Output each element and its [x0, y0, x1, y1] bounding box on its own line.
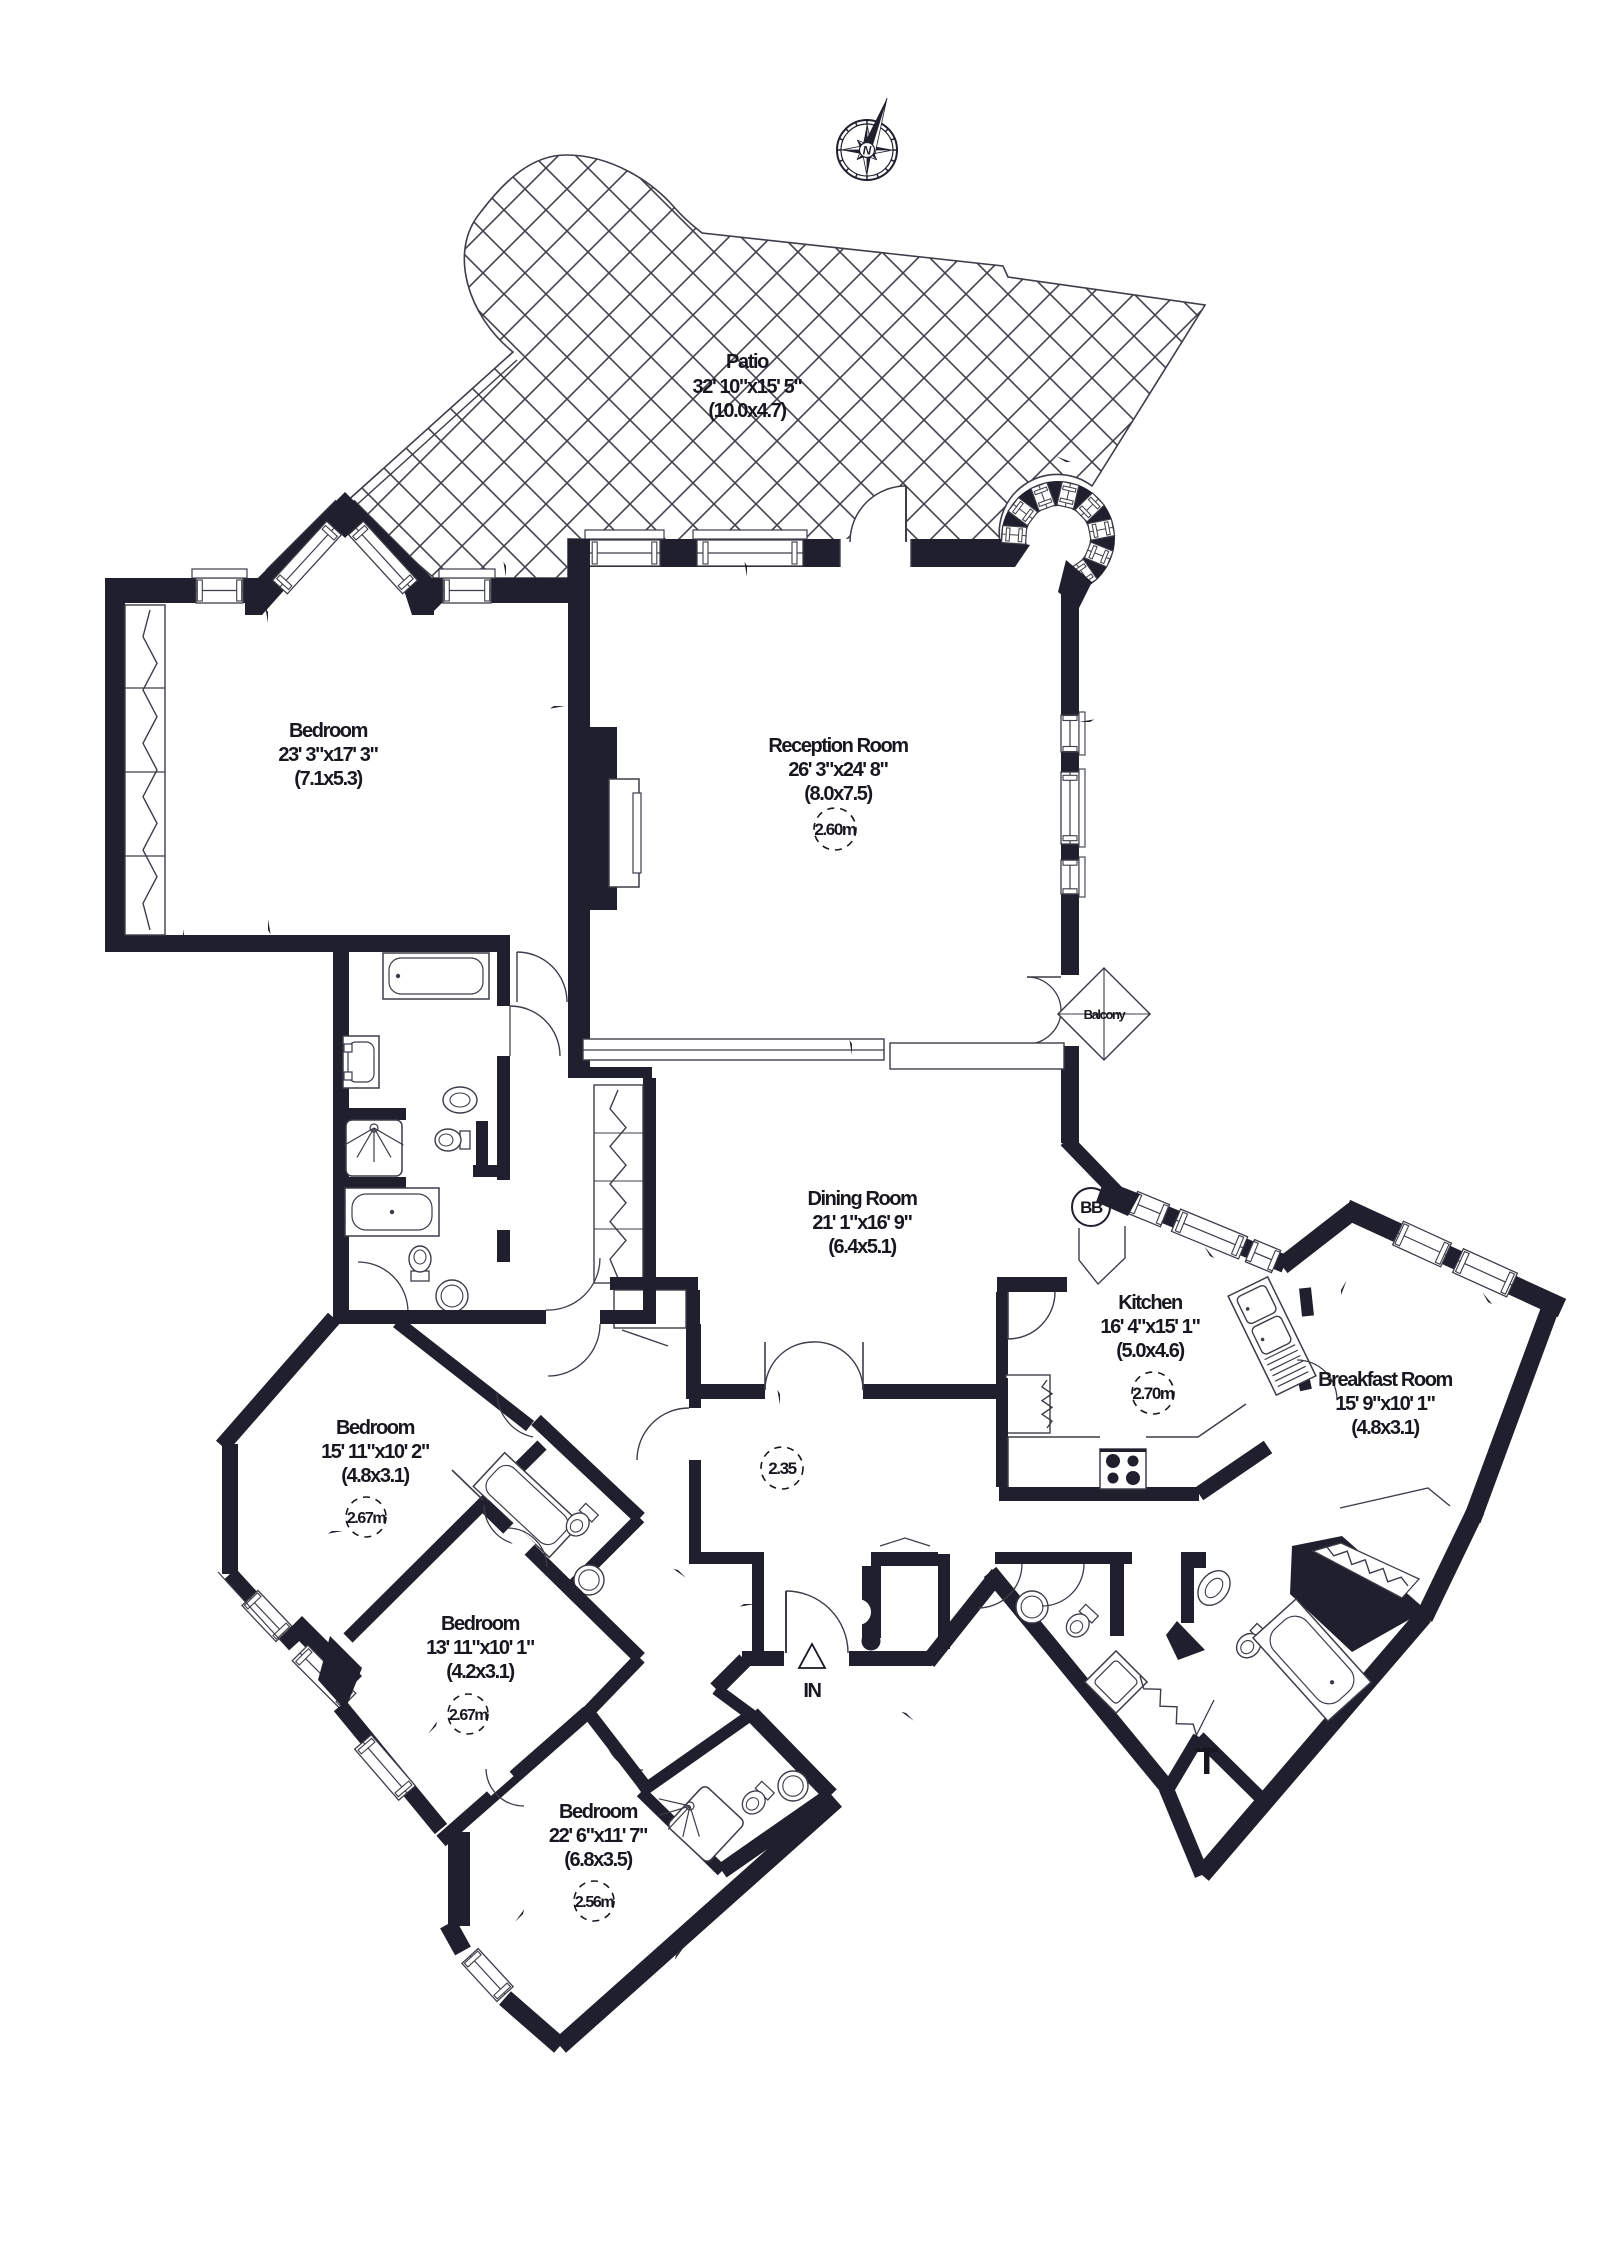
svg-text:2.56m: 2.56m — [575, 1894, 615, 1911]
svg-text:Bedroom: Bedroom — [289, 720, 368, 742]
svg-text:Reception Room: Reception Room — [768, 735, 908, 757]
svg-text:21' 1"x16' 9": 21' 1"x16' 9" — [812, 1212, 912, 1234]
svg-text:Breakfast Room: Breakfast Room — [1318, 1369, 1452, 1391]
svg-text:23' 3"x17' 3": 23' 3"x17' 3" — [278, 744, 378, 766]
svg-text:Bedroom: Bedroom — [559, 1801, 638, 1823]
svg-text:Patio: Patio — [726, 351, 769, 373]
svg-text:(4.8x3.1): (4.8x3.1) — [341, 1465, 409, 1487]
svg-text:N: N — [863, 144, 872, 158]
svg-text:(6.8x3.5): (6.8x3.5) — [564, 1849, 632, 1871]
svg-text:Bedroom: Bedroom — [441, 1613, 520, 1635]
svg-text:(4.2x3.1): (4.2x3.1) — [446, 1661, 514, 1683]
svg-text:22' 6"x11' 7": 22' 6"x11' 7" — [549, 1825, 648, 1847]
svg-text:2.67m: 2.67m — [449, 1707, 489, 1724]
svg-text:15' 11"x10' 2": 15' 11"x10' 2" — [321, 1441, 430, 1463]
svg-text:13' 11"x10' 1": 13' 11"x10' 1" — [426, 1637, 535, 1659]
svg-text:16' 4"x15' 1": 16' 4"x15' 1" — [1100, 1316, 1200, 1338]
svg-text:2.67m: 2.67m — [347, 1510, 387, 1527]
svg-text:2.70m: 2.70m — [1132, 1384, 1174, 1403]
svg-text:T: T — [1195, 1741, 1218, 1783]
svg-text:Dining Room: Dining Room — [807, 1188, 917, 1210]
svg-text:Balcony: Balcony — [1084, 1007, 1127, 1022]
svg-text:26' 3"x24' 8": 26' 3"x24' 8" — [788, 759, 888, 781]
svg-text:2.60m: 2.60m — [814, 820, 856, 839]
svg-text:Bedroom: Bedroom — [336, 1417, 415, 1439]
svg-text:32' 10"x15' 5": 32' 10"x15' 5" — [693, 376, 803, 398]
svg-text:(8.0x7.5): (8.0x7.5) — [804, 783, 872, 805]
svg-text:(7.1x5.3): (7.1x5.3) — [294, 768, 362, 790]
svg-text:(10.0x4.7): (10.0x4.7) — [708, 400, 786, 422]
svg-text:(5.0x4.6): (5.0x4.6) — [1116, 1340, 1184, 1362]
svg-text:Kitchen: Kitchen — [1118, 1292, 1182, 1314]
svg-text:(4.8x3.1): (4.8x3.1) — [1351, 1417, 1419, 1439]
svg-text:2.35: 2.35 — [768, 1459, 796, 1478]
svg-text:IN: IN — [803, 1680, 821, 1702]
svg-text:15' 9"x10' 1": 15' 9"x10' 1" — [1335, 1393, 1435, 1415]
svg-text:(6.4x5.1): (6.4x5.1) — [828, 1236, 896, 1258]
